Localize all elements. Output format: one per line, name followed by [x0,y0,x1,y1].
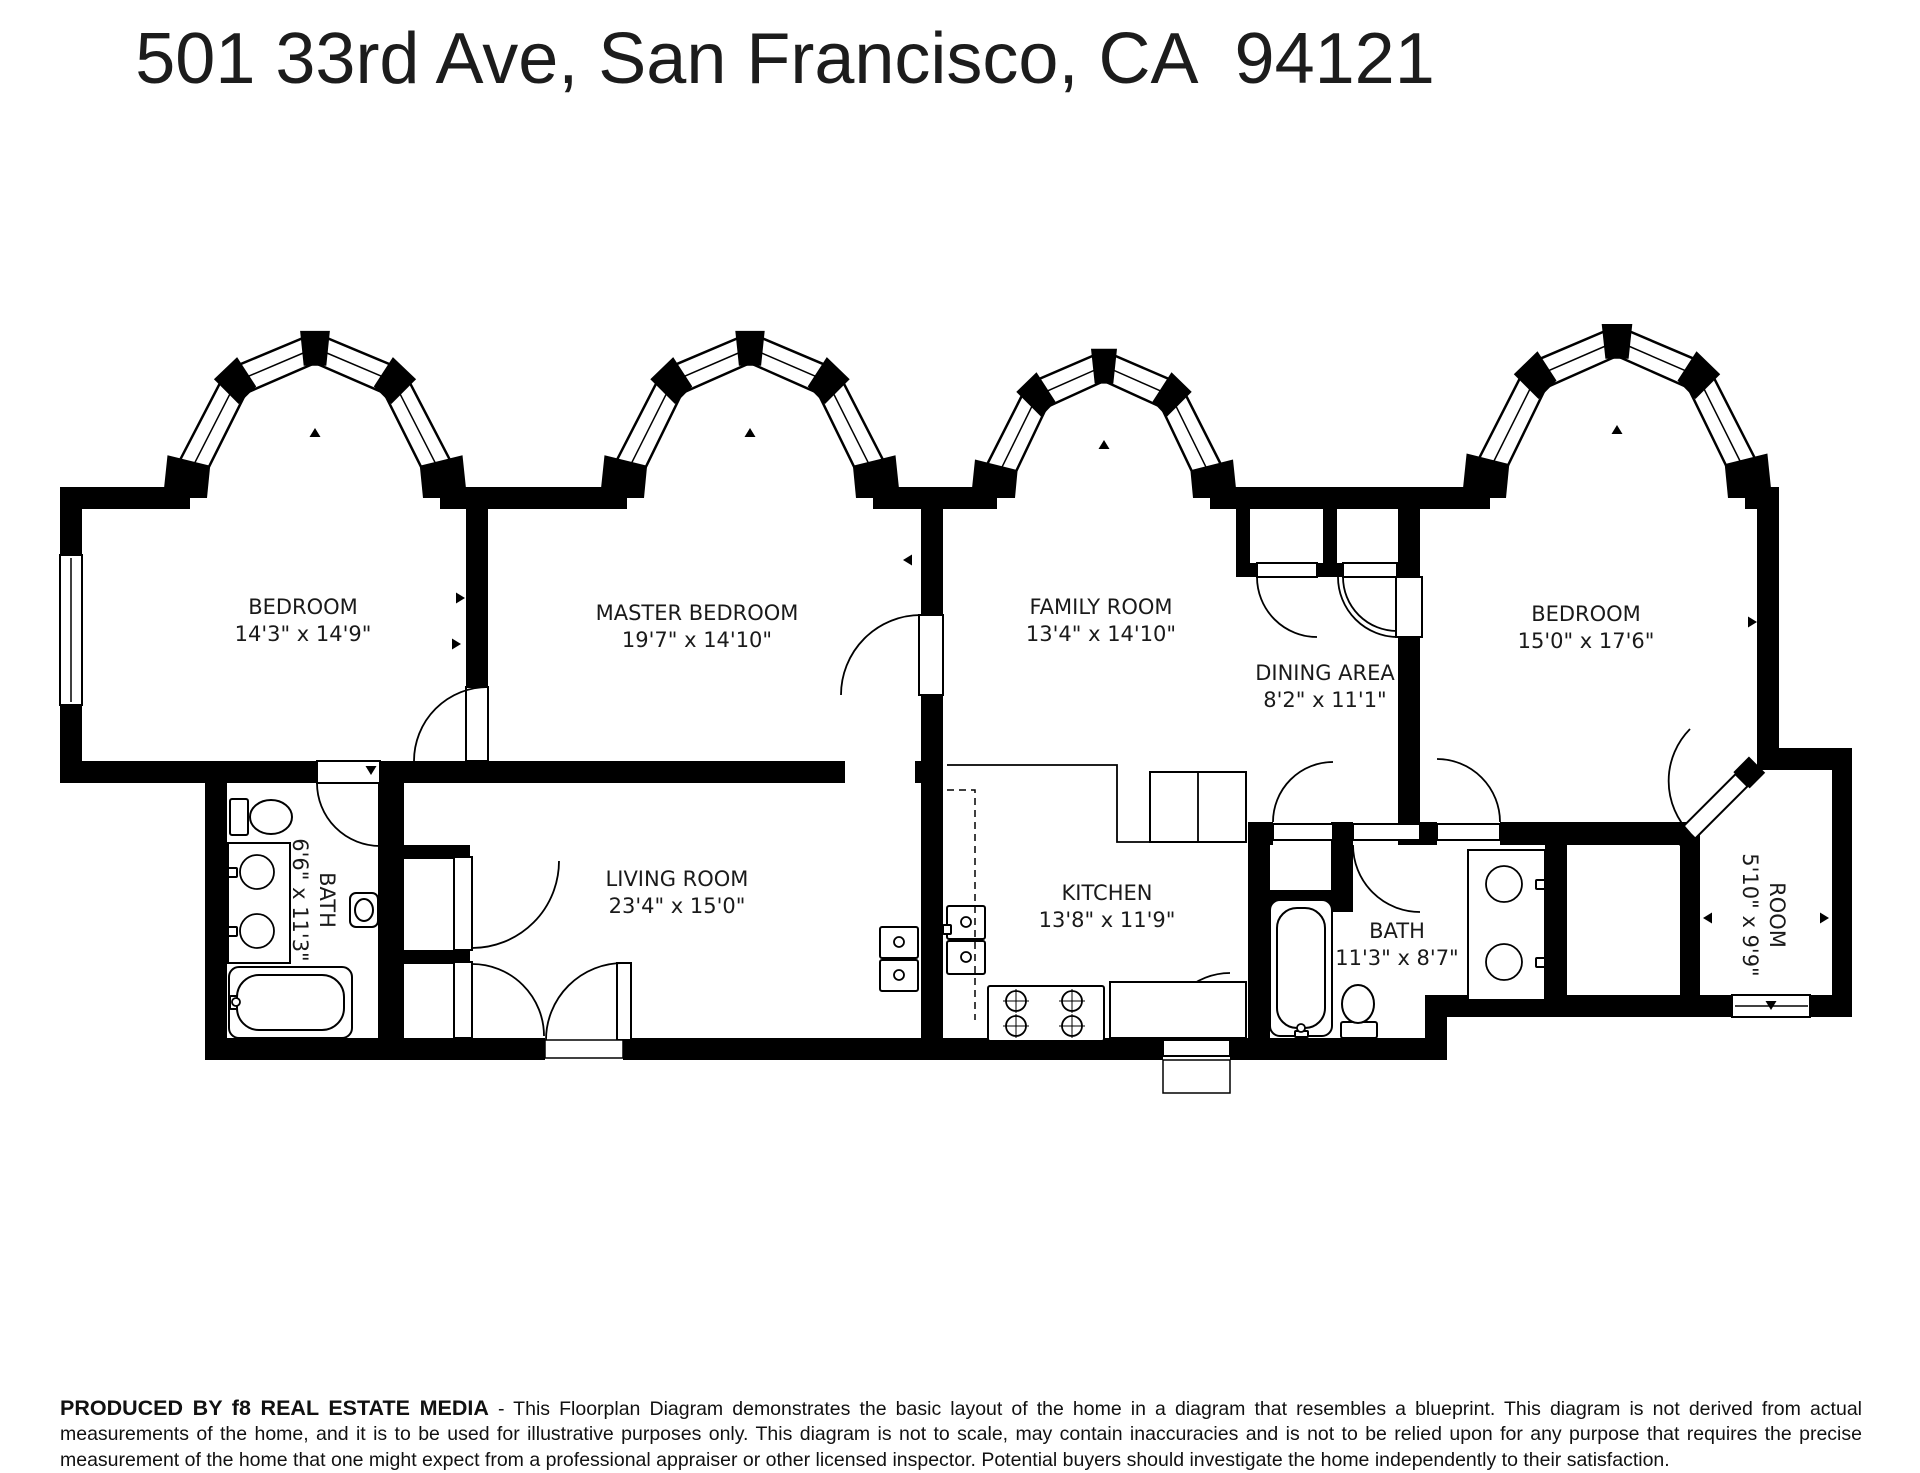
room-dims-family-room: 13'4" x 14'10" [1026,622,1176,646]
room-dims-bath-1: 6'6" x 11'3" [288,838,312,961]
room-label-living-room: LIVING ROOM [606,867,749,891]
footer-disclaimer: PRODUCED BY f8 REAL ESTATE MEDIA - This … [60,1394,1862,1473]
room-label-bedroom-1: BEDROOM [248,595,358,619]
room-label-kitchen: KITCHEN [1062,881,1153,905]
bay-windows-layer [163,324,1772,498]
room-label-bath-2: BATH [1369,919,1425,943]
floorplan-page: 501 33rd Ave, San Francisco, CA 94121 BE… [0,0,1920,1473]
room-dims-master-bedroom: 19'7" x 14'10" [622,628,772,652]
room-label-bedroom-2: BEDROOM [1531,602,1641,626]
room-dims-living-room: 23'4" x 15'0" [609,894,746,918]
room-label-dining-area: DINING AREA [1255,661,1395,685]
room-dims-bedroom-1: 14'3" x 14'9" [235,622,372,646]
room-dims-room: 5'10" x 9'9" [1738,853,1762,976]
room-label-bath-1: BATH [315,872,339,928]
room-dims-dining-area: 8'2" x 11'1" [1263,688,1386,712]
room-label-room: ROOM [1765,882,1789,948]
room-dims-bedroom-2: 15'0" x 17'6" [1518,629,1655,653]
room-dims-bath-2: 11'3" x 8'7" [1335,946,1458,970]
producer-name: PRODUCED BY f8 REAL ESTATE MEDIA [60,1396,489,1420]
room-label-master-bedroom: MASTER BEDROOM [596,601,799,625]
room-dims-kitchen: 13'8" x 11'9" [1039,908,1176,932]
room-label-family-room: FAMILY ROOM [1029,595,1172,619]
floorplan-diagram: BEDROOM 14'3" x 14'9" MASTER BEDROOM 19'… [0,0,1920,1473]
